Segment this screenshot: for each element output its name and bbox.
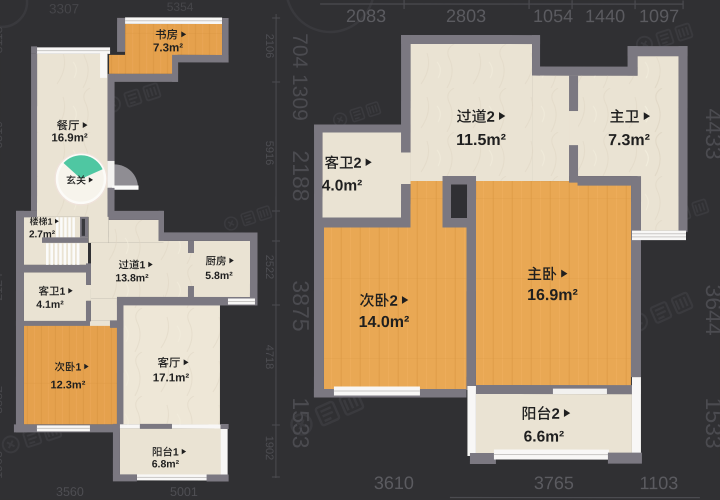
svg-text:704 1309: 704 1309 <box>288 33 311 121</box>
svg-text:6.6m²: 6.6m² <box>524 429 565 446</box>
svg-text:2: 2 <box>551 406 559 423</box>
svg-text:2522: 2522 <box>263 255 275 279</box>
svg-text:8118: 8118 <box>0 26 5 53</box>
svg-text:5.8m²: 5.8m² <box>205 270 233 282</box>
svg-text:3765: 3765 <box>534 473 574 493</box>
svg-text:3882: 3882 <box>0 386 5 414</box>
svg-text:6519: 6519 <box>0 121 5 149</box>
svg-text:3875: 3875 <box>288 280 314 331</box>
svg-text:4.0m²: 4.0m² <box>322 177 363 194</box>
svg-text:14.0m²: 14.0m² <box>359 314 410 331</box>
svg-text:1: 1 <box>75 362 81 374</box>
svg-text:2083: 2083 <box>346 6 386 26</box>
svg-text:1902: 1902 <box>263 436 275 460</box>
svg-text:1054: 1054 <box>533 6 573 26</box>
svg-text:4433: 4433 <box>701 109 720 160</box>
svg-text:13.8m²: 13.8m² <box>115 272 149 284</box>
svg-text:2.7m²: 2.7m² <box>29 229 56 240</box>
svg-text:1097: 1097 <box>639 6 679 26</box>
svg-text:16.9m²: 16.9m² <box>51 132 88 144</box>
svg-text:1: 1 <box>48 217 53 227</box>
svg-text:1533: 1533 <box>288 397 314 448</box>
svg-text:1533: 1533 <box>701 398 720 449</box>
svg-text:2: 2 <box>354 156 362 172</box>
svg-text:11.5m²: 11.5m² <box>456 132 506 149</box>
svg-text:1: 1 <box>59 286 65 298</box>
svg-text:4.1m²: 4.1m² <box>36 299 64 311</box>
svg-text:2803: 2803 <box>446 6 486 26</box>
svg-text:1: 1 <box>173 447 179 459</box>
svg-text:1103: 1103 <box>640 473 679 493</box>
svg-text:2: 2 <box>389 293 397 310</box>
svg-text:2106: 2106 <box>263 34 275 58</box>
svg-text:2124: 2124 <box>0 273 5 301</box>
svg-text:6.8m²: 6.8m² <box>152 458 180 470</box>
svg-text:3307: 3307 <box>49 1 79 16</box>
svg-text:1440: 1440 <box>585 6 625 26</box>
svg-text:5916: 5916 <box>263 141 275 165</box>
svg-text:1903: 1903 <box>0 451 5 479</box>
svg-text:1: 1 <box>139 259 145 271</box>
svg-text:7.3m²: 7.3m² <box>153 42 183 54</box>
svg-text:16.9m²: 16.9m² <box>527 287 578 304</box>
svg-text:5001: 5001 <box>170 485 198 499</box>
svg-text:2188: 2188 <box>288 150 314 201</box>
svg-text:3644: 3644 <box>701 285 720 336</box>
svg-text:4718: 4718 <box>263 345 275 369</box>
svg-text:3560: 3560 <box>56 485 84 499</box>
svg-text:7.3m²: 7.3m² <box>608 132 650 149</box>
svg-text:2: 2 <box>487 109 495 126</box>
svg-text:12.3m²: 12.3m² <box>51 379 86 391</box>
svg-text:17.1m²: 17.1m² <box>153 372 190 384</box>
svg-text:5354: 5354 <box>167 0 194 14</box>
svg-text:3610: 3610 <box>374 473 414 493</box>
